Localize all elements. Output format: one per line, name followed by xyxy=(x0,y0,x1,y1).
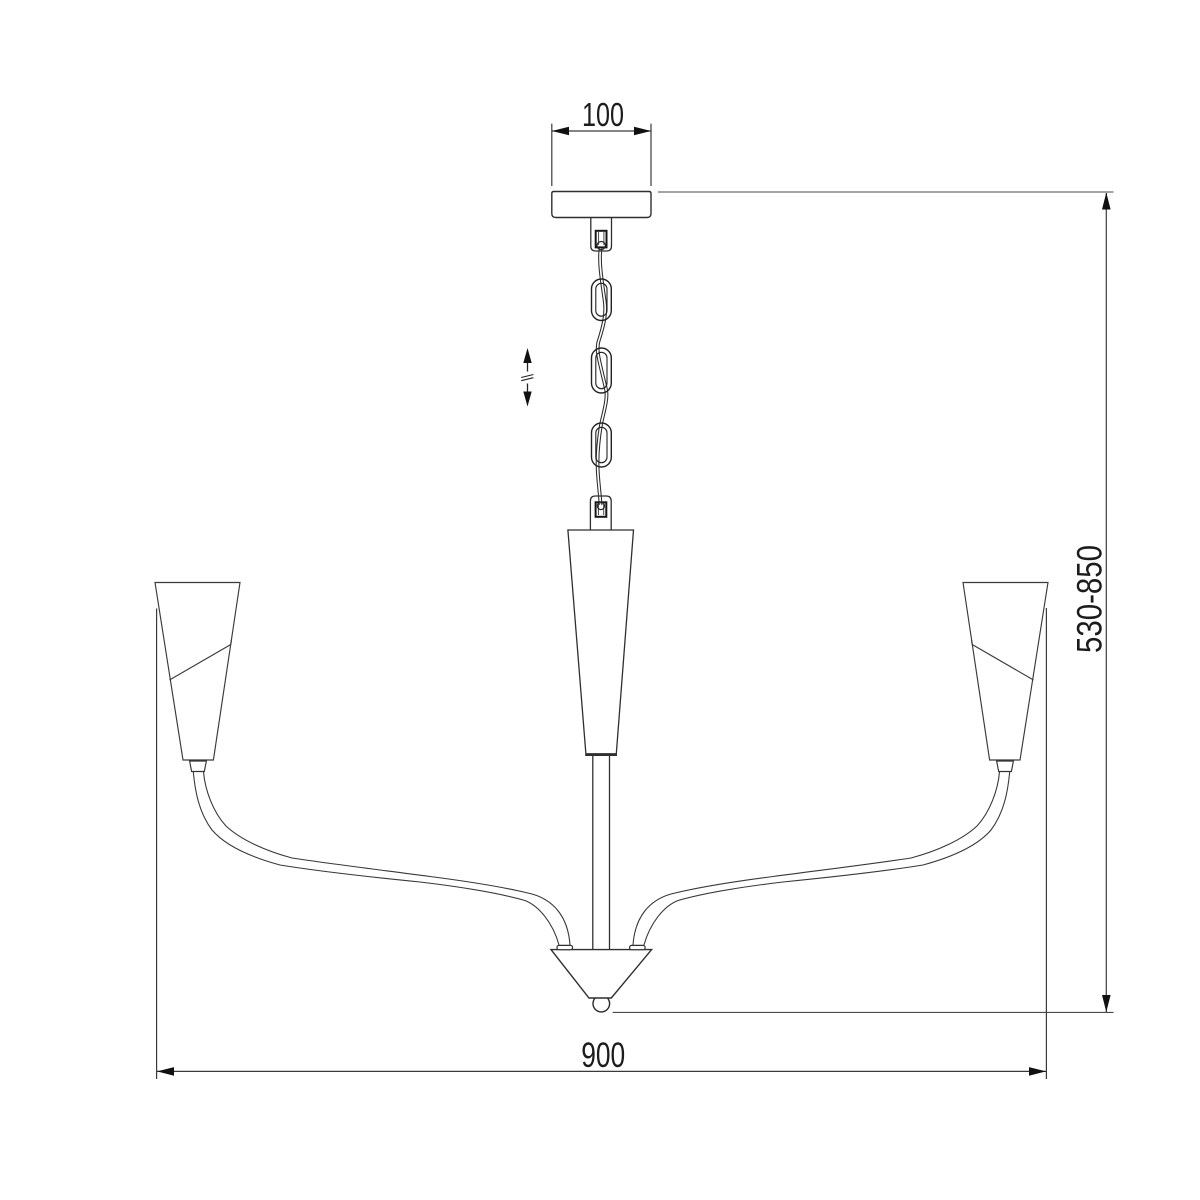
svg-text:100: 100 xyxy=(582,96,624,133)
svg-text:530-850: 530-850 xyxy=(1071,545,1110,653)
svg-text:900: 900 xyxy=(581,1036,625,1075)
